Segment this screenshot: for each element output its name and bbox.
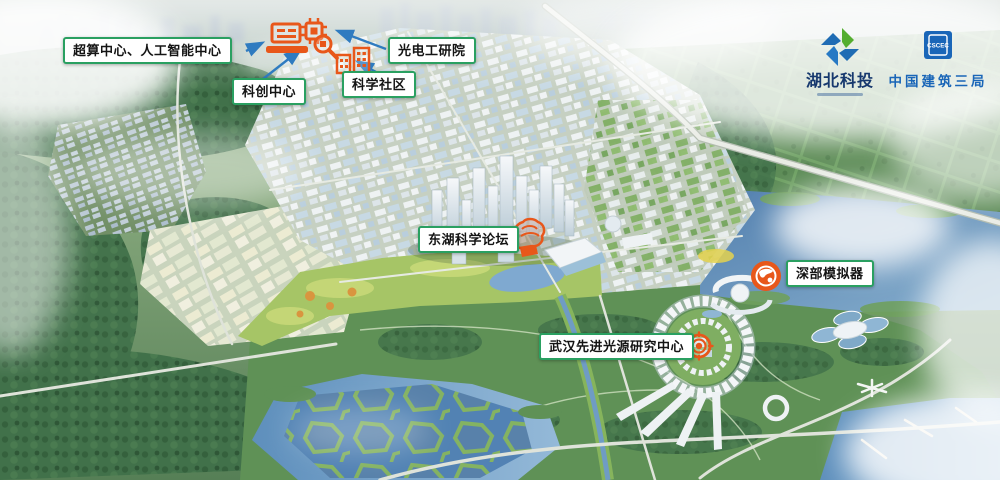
cscec-badge-text: CSCEC — [927, 43, 949, 50]
label-donghu-science-forum: 东湖科学论坛 — [418, 226, 519, 253]
label-innovation-center: 科创中心 — [232, 78, 306, 105]
label-science-community: 科学社区 — [342, 71, 416, 98]
pinwheel-logo-icon — [819, 26, 861, 68]
label-optoelectronics-institute: 光电工研院 — [388, 37, 476, 64]
cscec-badge-icon: CSCEC — [923, 30, 953, 62]
hubei-sti-logo-subline — [817, 93, 863, 96]
label-supercomputing-ai-center: 超算中心、人工智能中心 — [63, 37, 232, 64]
hubei-sti-logo: 湖北科投 — [798, 26, 882, 96]
label-wuhan-advanced-light-source: 武汉先进光源研究中心 — [539, 333, 694, 360]
earth-globe-icon — [750, 260, 782, 297]
cscec3-logo-text: 中国建筑三局 — [882, 70, 994, 90]
hubei-sti-logo-text: 湖北科投 — [798, 73, 882, 91]
label-deep-earth-simulator: 深部模拟器 — [786, 260, 874, 287]
masterplan-screenshot: 超算中心、人工智能中心 科创中心 光电工研院 科学社区 东湖科学论坛 深部模拟器… — [0, 0, 1000, 480]
cscec3-logo: CSCEC 中国建筑三局 — [882, 30, 994, 90]
